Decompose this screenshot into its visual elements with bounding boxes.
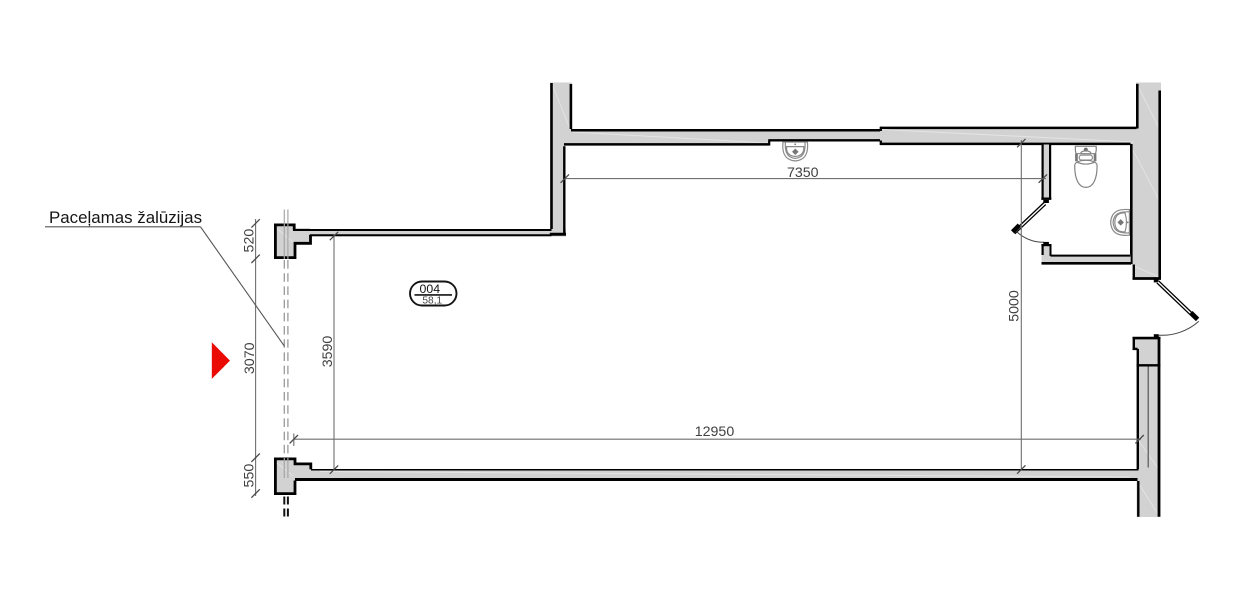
svg-text:7350: 7350 xyxy=(787,165,819,181)
svg-text:58,1: 58,1 xyxy=(422,295,442,306)
svg-text:3590: 3590 xyxy=(320,336,336,368)
svg-text:004: 004 xyxy=(420,282,441,296)
svg-text:550: 550 xyxy=(242,464,258,488)
svg-text:3070: 3070 xyxy=(242,342,258,374)
svg-text:Paceļamas žalūzijas: Paceļamas žalūzijas xyxy=(49,208,202,227)
svg-text:520: 520 xyxy=(242,229,258,253)
svg-text:5000: 5000 xyxy=(1007,290,1023,322)
svg-text:12950: 12950 xyxy=(695,424,735,440)
